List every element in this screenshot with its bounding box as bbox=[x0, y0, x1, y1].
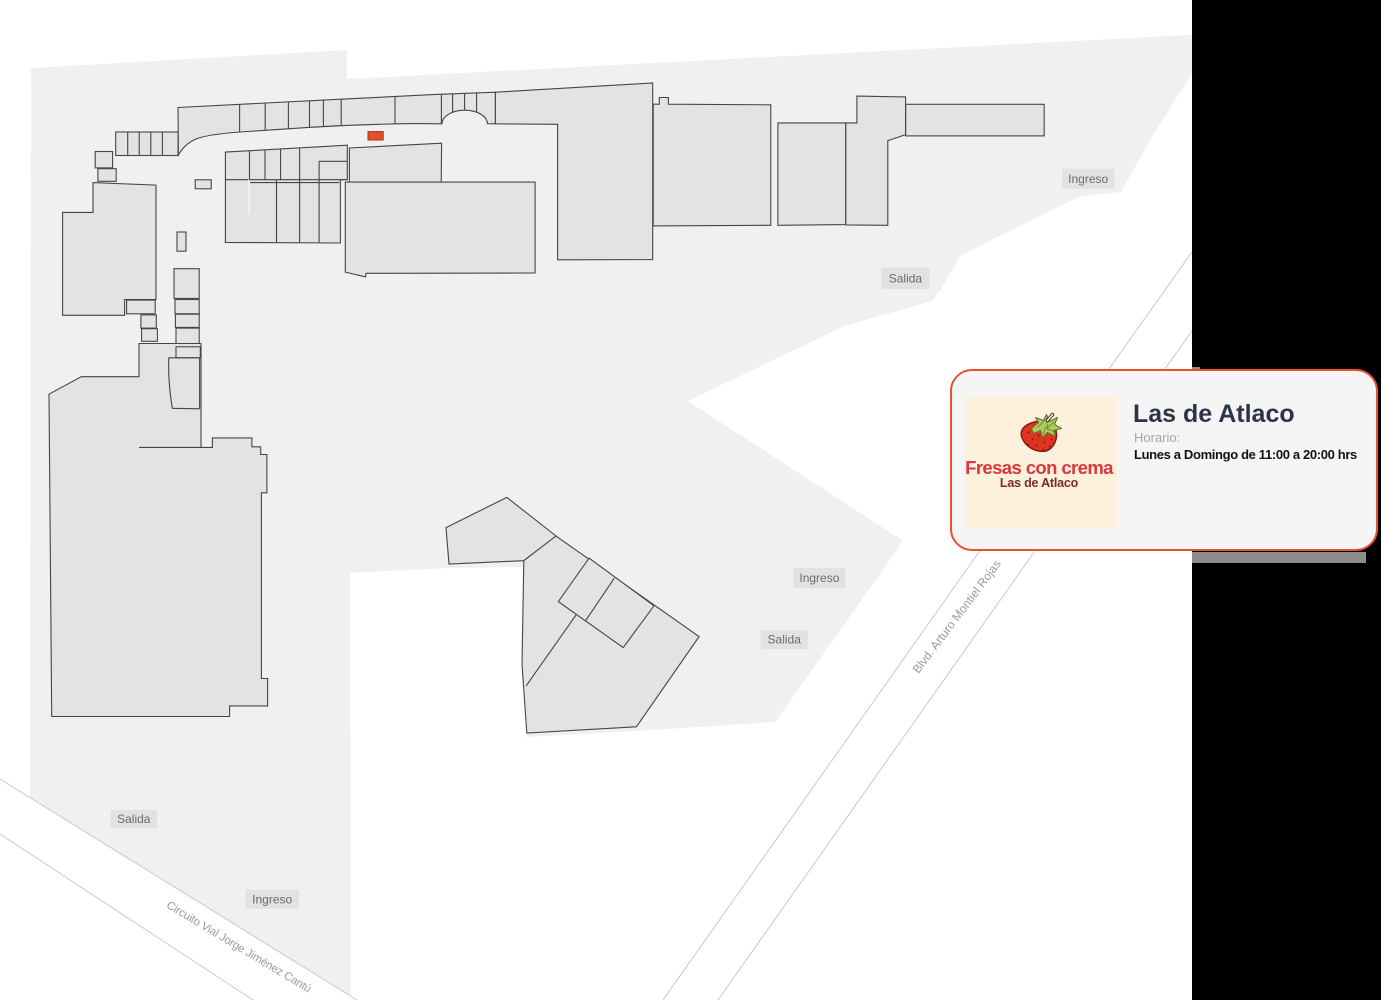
svg-text:Ingreso: Ingreso bbox=[252, 892, 292, 906]
svg-text:Salida: Salida bbox=[117, 812, 151, 826]
svg-text:Salida: Salida bbox=[768, 633, 802, 647]
svg-text:Salida: Salida bbox=[889, 272, 923, 286]
svg-text:Ingreso: Ingreso bbox=[1068, 172, 1108, 186]
svg-text:Blvd. Arturo Montiel Rojas: Blvd. Arturo Montiel Rojas bbox=[910, 557, 1004, 676]
svg-text:Ingreso: Ingreso bbox=[799, 571, 839, 585]
